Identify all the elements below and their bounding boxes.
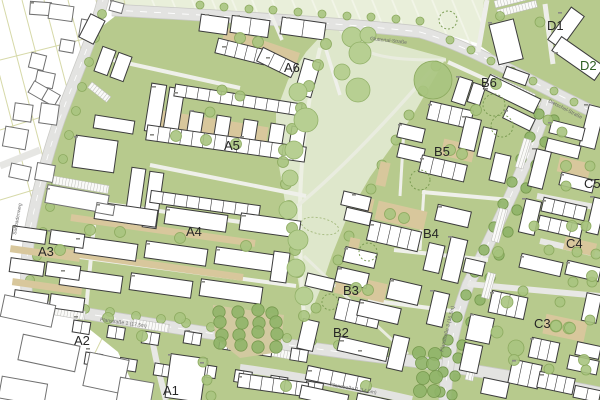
svg-text:B6: B6 [481,75,497,90]
svg-text:C5: C5 [584,176,600,191]
svg-text:B5: B5 [434,144,450,159]
svg-text:B2: B2 [333,325,349,340]
svg-text:D2: D2 [580,58,597,73]
svg-text:D1: D1 [547,18,564,33]
svg-text:A2: A2 [74,333,90,348]
svg-text:C4: C4 [566,236,583,251]
svg-text:A6: A6 [284,60,300,75]
svg-text:C3: C3 [534,316,551,331]
svg-text:A1: A1 [163,383,179,398]
svg-text:B4: B4 [423,226,439,241]
svg-text:A3: A3 [38,244,54,259]
svg-text:A4: A4 [186,224,202,239]
svg-text:B3: B3 [343,283,359,298]
svg-text:A5: A5 [224,138,240,153]
